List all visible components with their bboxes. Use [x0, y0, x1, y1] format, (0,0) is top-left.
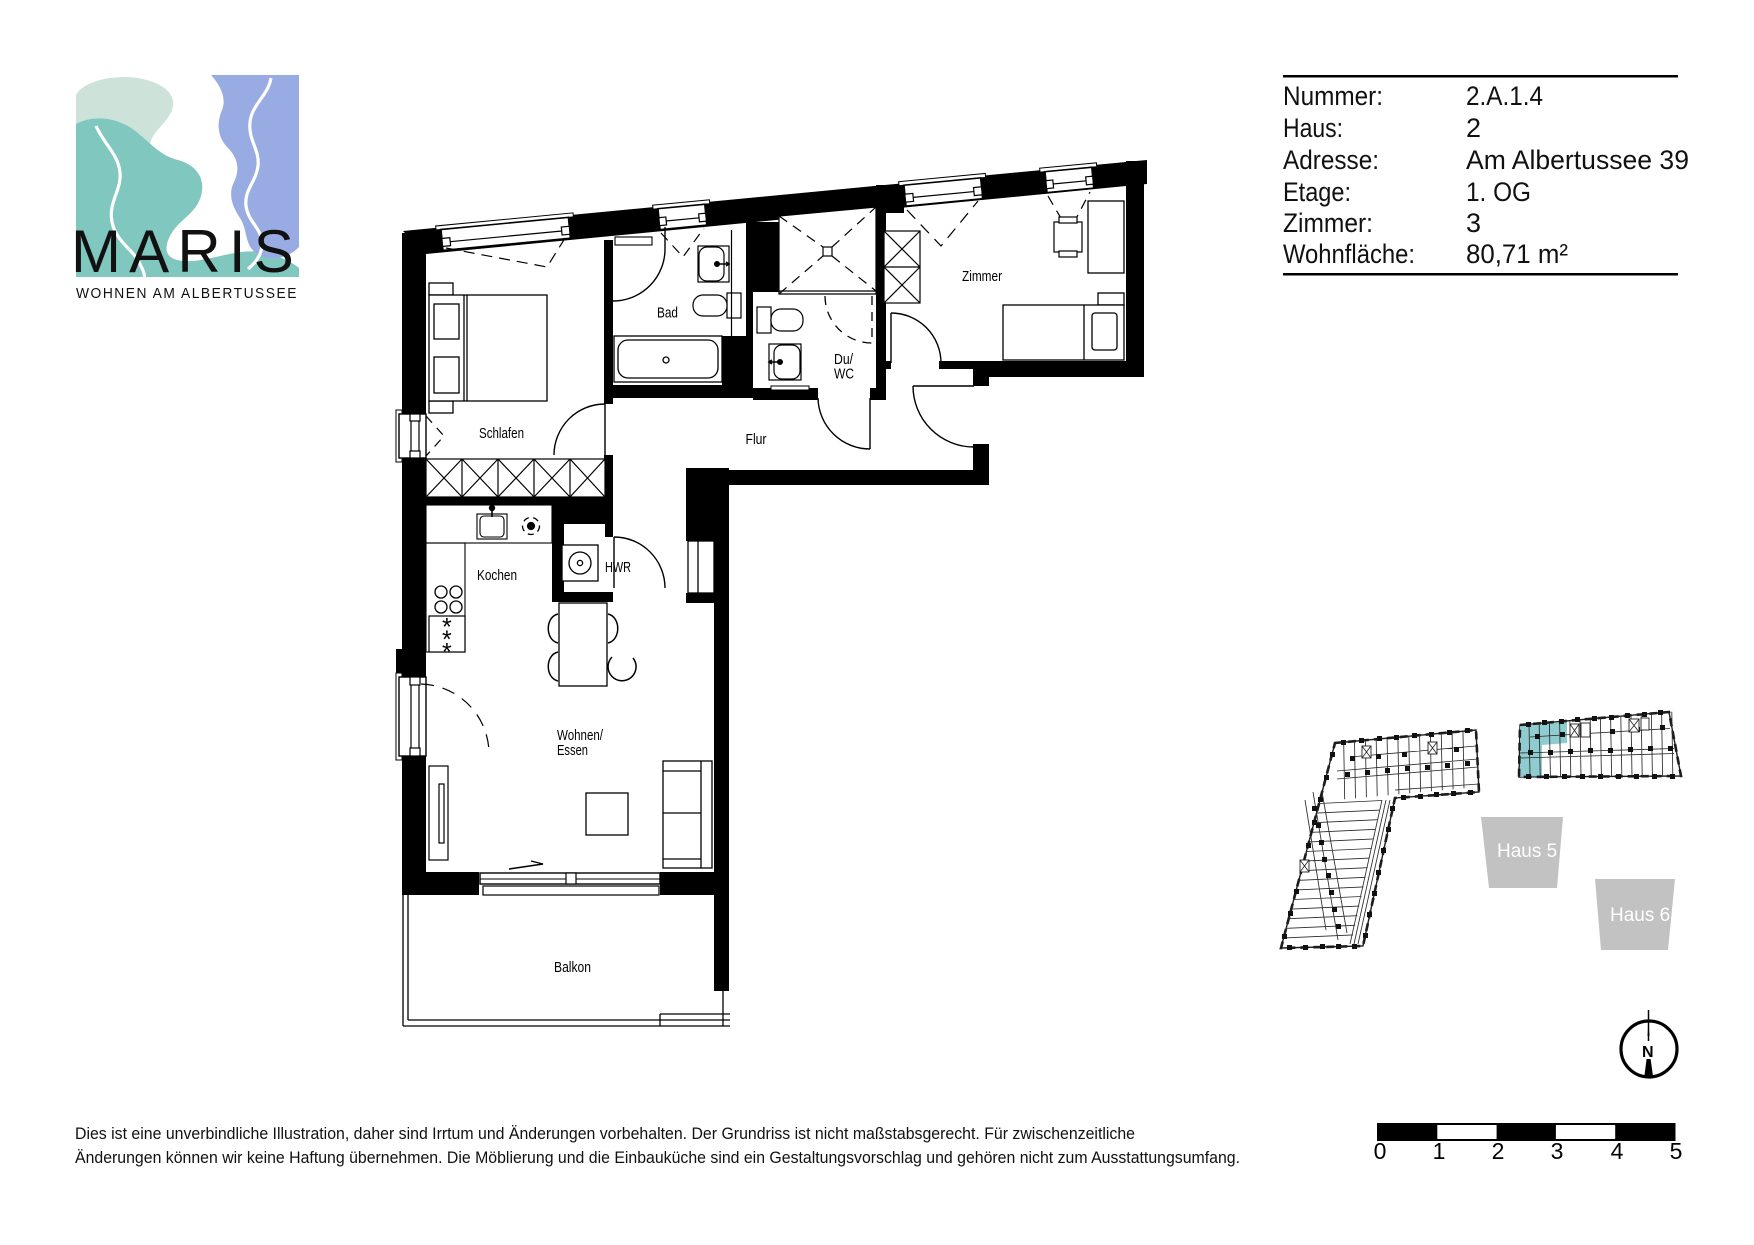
- svg-text:Bad: Bad: [657, 305, 678, 322]
- svg-text:3: 3: [1466, 208, 1481, 238]
- svg-text:*: *: [442, 639, 452, 667]
- svg-text:Schlafen: Schlafen: [479, 425, 524, 442]
- svg-text:Essen: Essen: [557, 742, 588, 759]
- svg-text:Wohnfläche:: Wohnfläche:: [1283, 239, 1415, 269]
- svg-text:Zimmer:: Zimmer:: [1283, 208, 1373, 238]
- svg-text:1: 1: [1433, 1138, 1446, 1164]
- svg-text:2.A.1.4: 2.A.1.4: [1466, 81, 1543, 111]
- svg-text:Balkon: Balkon: [554, 959, 591, 976]
- svg-text:2: 2: [1466, 113, 1481, 143]
- svg-text:WC: WC: [834, 366, 854, 383]
- svg-text:N: N: [1642, 1044, 1654, 1061]
- svg-text:Etage:: Etage:: [1283, 177, 1351, 207]
- svg-text:2: 2: [1492, 1138, 1505, 1164]
- svg-text:Haus:: Haus:: [1283, 113, 1343, 143]
- svg-text:Nummer:: Nummer:: [1283, 81, 1383, 111]
- svg-text:3: 3: [1551, 1138, 1564, 1164]
- svg-text:Flur: Flur: [746, 431, 767, 448]
- svg-text:Änderungen können wir keine Ha: Änderungen können wir keine Haftung über…: [75, 1149, 1240, 1167]
- svg-text:MARIS: MARIS: [71, 218, 302, 285]
- svg-text:Am Albertussee 39: Am Albertussee 39: [1466, 145, 1689, 175]
- svg-text:WOHNEN AM ALBERTUSSEE: WOHNEN AM ALBERTUSSEE: [76, 286, 298, 302]
- svg-text:Haus 5: Haus 5: [1497, 841, 1557, 862]
- svg-text:Adresse:: Adresse:: [1283, 145, 1379, 175]
- svg-text:4: 4: [1611, 1138, 1624, 1164]
- svg-text:5: 5: [1670, 1138, 1683, 1164]
- svg-text:Kochen: Kochen: [477, 567, 517, 584]
- svg-text:Zimmer: Zimmer: [962, 268, 1002, 285]
- svg-text:Dies ist eine unverbindliche I: Dies ist eine unverbindliche Illustratio…: [75, 1125, 1135, 1143]
- svg-text:0: 0: [1374, 1138, 1387, 1164]
- svg-text:1. OG: 1. OG: [1466, 177, 1531, 207]
- svg-text:HWR: HWR: [605, 559, 631, 576]
- svg-text:Haus 6: Haus 6: [1610, 905, 1670, 926]
- svg-text:80,71 m²: 80,71 m²: [1466, 239, 1568, 269]
